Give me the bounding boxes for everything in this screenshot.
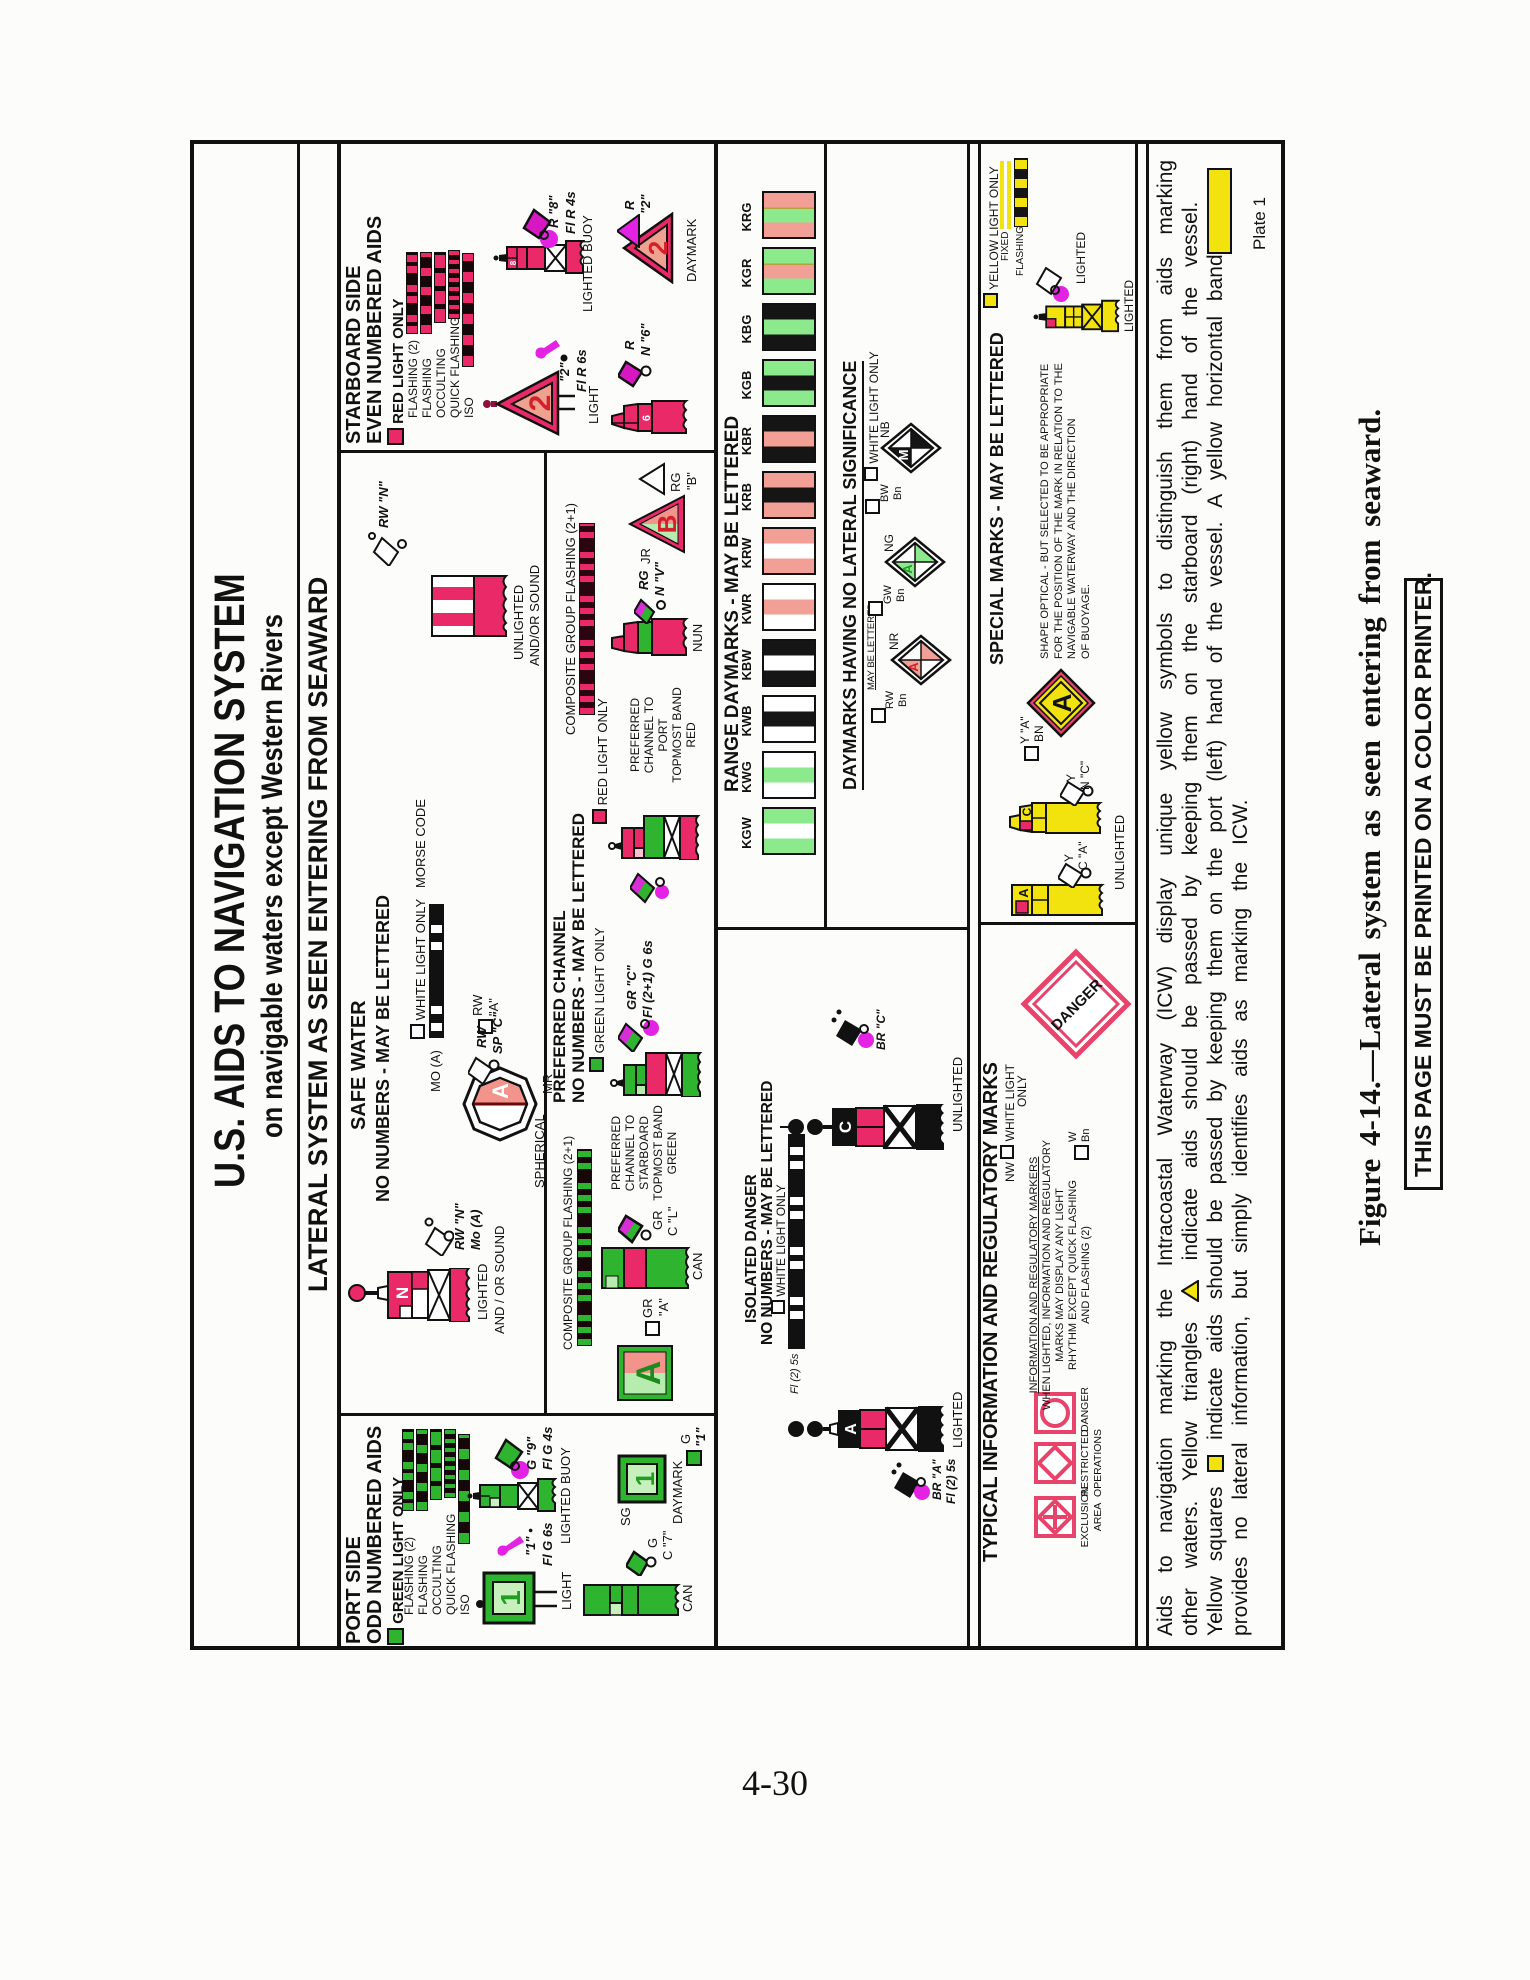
svg-text:A: A (630, 1361, 668, 1386)
svg-text:N: N (393, 1287, 412, 1299)
svg-text:M: M (896, 450, 911, 461)
svg-text:C: C (836, 1121, 855, 1133)
svg-text:A: A (1047, 693, 1077, 712)
svg-text:A: A (906, 662, 921, 672)
svg-text:B: B (652, 515, 682, 534)
svg-text:A: A (900, 564, 915, 574)
svg-text:A: A (843, 1423, 860, 1435)
svg-text:8: 8 (509, 260, 518, 265)
svg-text:A: A (488, 1083, 513, 1099)
svg-text:A: A (1016, 888, 1031, 898)
svg-text:1: 1 (630, 1472, 660, 1486)
svg-text:1: 1 (495, 1590, 526, 1606)
svg-text:2: 2 (524, 395, 557, 412)
svg-text:2: 2 (643, 241, 673, 255)
